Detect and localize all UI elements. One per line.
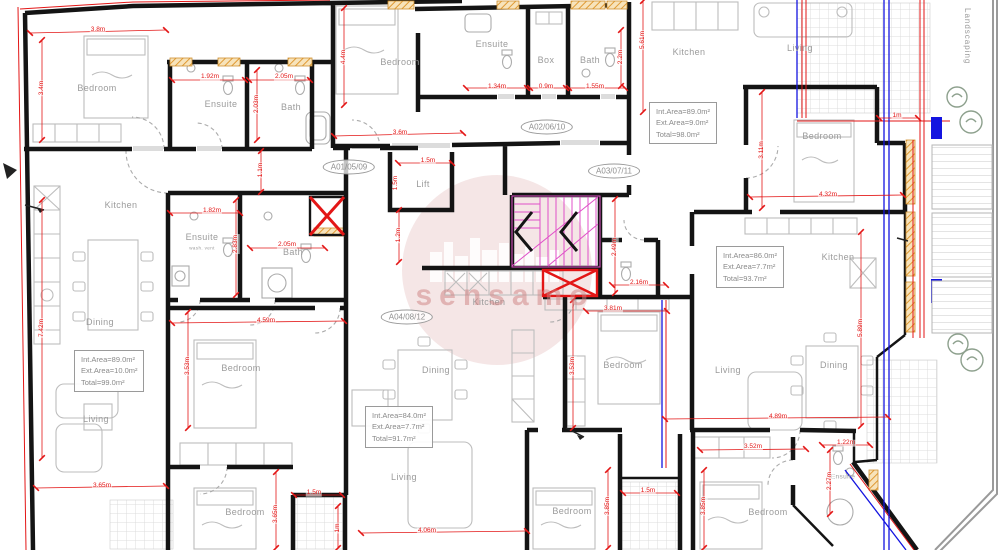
sink [582, 69, 590, 77]
floor-plan: BedroomEnsuiteBathBedroomEnsuiteBoxBathK… [0, 0, 1000, 550]
balcony-railings [932, 145, 992, 333]
bathtub [465, 14, 491, 32]
toilet [223, 76, 233, 95]
toilet [621, 262, 631, 281]
toilet [605, 48, 615, 67]
watermark-text: sensamo [415, 279, 594, 313]
north-mark [3, 163, 17, 179]
toilet [295, 76, 305, 95]
landscaping-label: Landscaping [963, 8, 972, 64]
floor-plan-drawing [0, 0, 1000, 550]
sink [275, 64, 283, 72]
shower [262, 268, 292, 298]
toilet [223, 238, 233, 257]
toilet [301, 244, 311, 263]
toilet [502, 50, 512, 69]
sink [264, 212, 272, 220]
service-riser [931, 117, 942, 139]
toilet [833, 446, 843, 465]
